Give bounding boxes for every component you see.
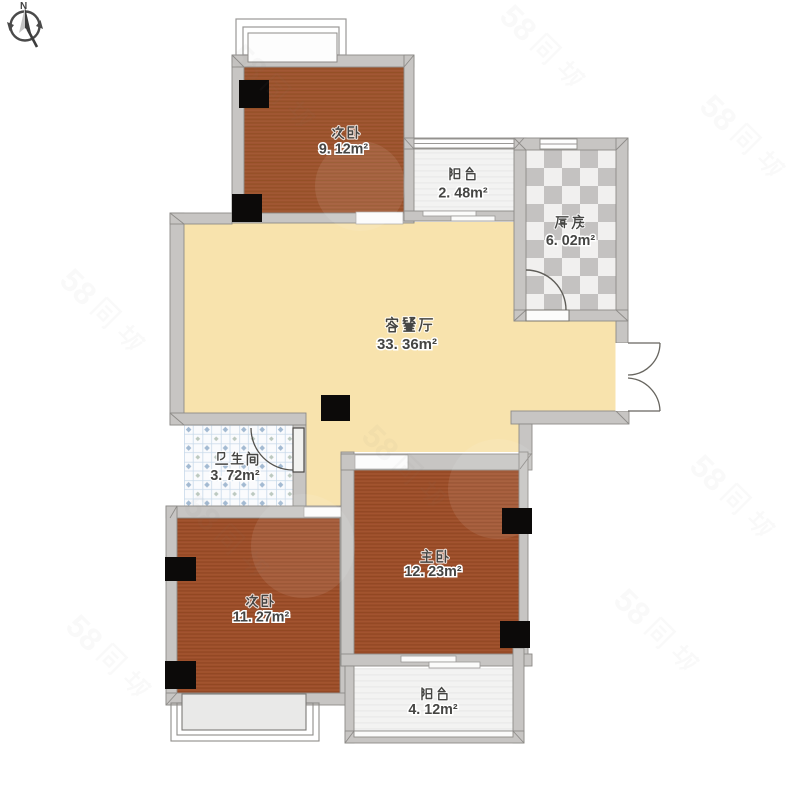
svg-text:9. 12m²: 9. 12m² (319, 142, 369, 158)
svg-text:4. 12m²: 4. 12m² (408, 702, 458, 718)
svg-text:3. 72m²: 3. 72m² (210, 468, 260, 484)
svg-text:12. 23m²: 12. 23m² (404, 564, 461, 580)
svg-text:33. 36m²: 33. 36m² (377, 336, 437, 353)
svg-text:6. 02m²: 6. 02m² (546, 233, 596, 249)
svg-text:2. 48m²: 2. 48m² (438, 186, 488, 202)
svg-text:N: N (20, 1, 27, 12)
svg-text:11. 27m²: 11. 27m² (233, 610, 290, 626)
